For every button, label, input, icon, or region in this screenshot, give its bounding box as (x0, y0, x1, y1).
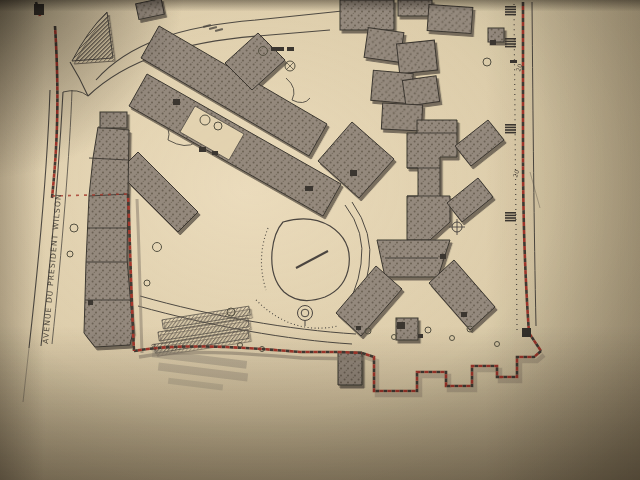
building-street-strip-cap (100, 112, 127, 128)
site-plan-drawing: AVENUE DU PRESIDENT WILSON 20 20 20 (0, 0, 640, 480)
building-topright-8 (381, 103, 422, 131)
building-small-right-top (488, 28, 504, 42)
building-topright-7 (402, 76, 439, 106)
building-topright-3 (427, 4, 473, 33)
building-topright-1 (340, 0, 394, 30)
boundary-corner-marker (522, 328, 531, 337)
building-fan-core (377, 240, 450, 277)
photo-of-site-plan: AVENUE DU PRESIDENT WILSON 20 20 20 (0, 0, 640, 480)
dimension-marker-1: 20 (150, 343, 157, 351)
building-topright-2 (398, 0, 432, 16)
building-topright-5 (397, 40, 438, 74)
plan-corner-mark (34, 4, 44, 15)
